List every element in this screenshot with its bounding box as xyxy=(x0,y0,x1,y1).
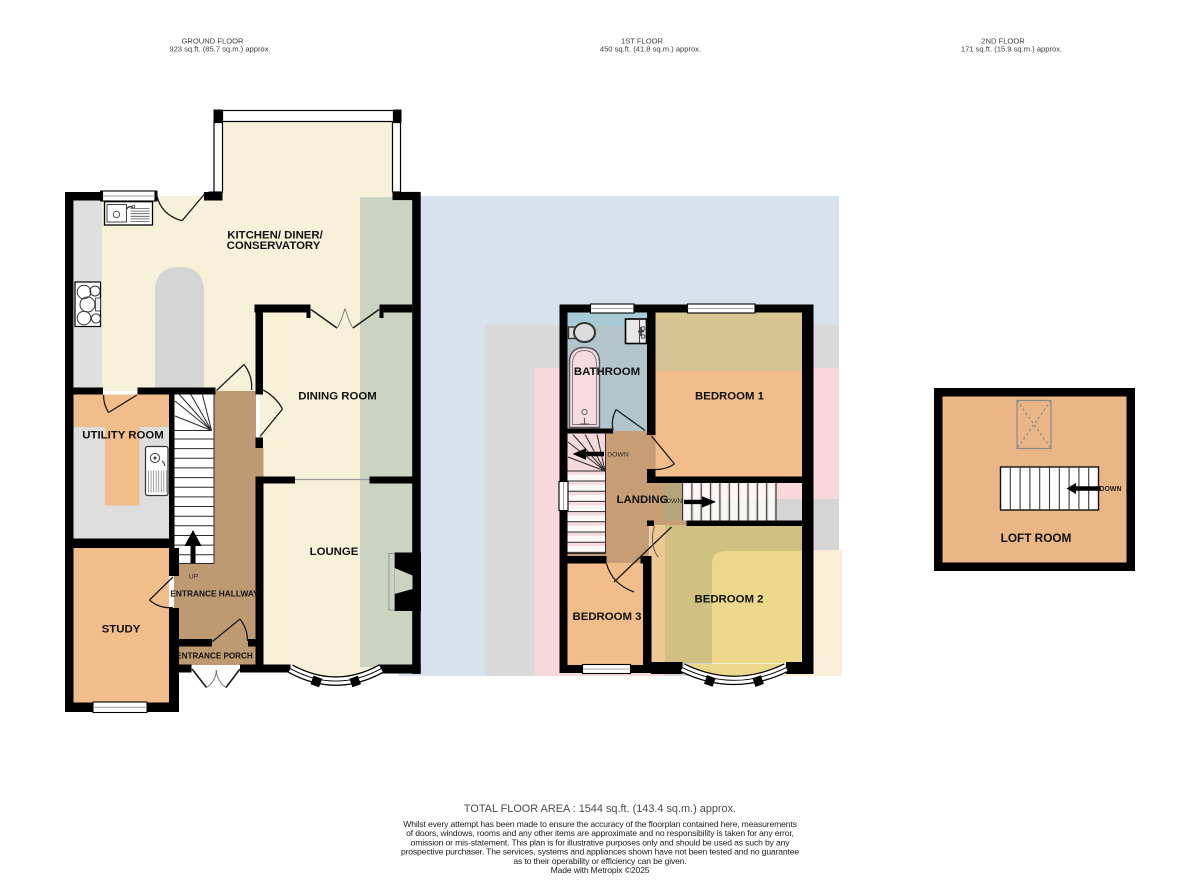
svg-text:Made with Metropix ©2025: Made with Metropix ©2025 xyxy=(551,865,650,875)
svg-text:BATHROOM: BATHROOM xyxy=(574,366,640,378)
svg-text:UP: UP xyxy=(189,574,199,581)
svg-text:CONSERVATORY: CONSERVATORY xyxy=(227,240,321,252)
svg-text:DINING ROOM: DINING ROOM xyxy=(298,391,376,403)
svg-text:171 sq.ft. (15.9 sq.m.) approx: 171 sq.ft. (15.9 sq.m.) approx. xyxy=(961,45,1062,54)
svg-text:BEDROOM 3: BEDROOM 3 xyxy=(573,611,642,623)
svg-text:ENTRANCE PORCH: ENTRANCE PORCH xyxy=(176,652,253,661)
svg-text:LOUNGE: LOUNGE xyxy=(310,546,359,558)
svg-text:DOWN: DOWN xyxy=(607,452,629,459)
svg-text:BEDROOM 2: BEDROOM 2 xyxy=(695,594,764,606)
svg-text:LOFT ROOM: LOFT ROOM xyxy=(1001,531,1072,545)
svg-text:DOWN: DOWN xyxy=(1099,486,1121,493)
svg-text:LANDING: LANDING xyxy=(617,494,669,506)
svg-text:450 sq.ft. (41.8 sq.m.) approx: 450 sq.ft. (41.8 sq.m.) approx. xyxy=(600,45,701,54)
svg-text:923 sq.ft. (85.7 sq.m.) approx: 923 sq.ft. (85.7 sq.m.) approx. xyxy=(169,45,270,54)
svg-text:UTILITY ROOM: UTILITY ROOM xyxy=(82,430,163,442)
svg-text:BEDROOM 1: BEDROOM 1 xyxy=(695,391,765,403)
svg-text:TOTAL FLOOR AREA : 1544 sq.ft.: TOTAL FLOOR AREA : 1544 sq.ft. (143.4 sq… xyxy=(464,803,736,815)
svg-text:STUDY: STUDY xyxy=(102,624,141,636)
svg-text:ENTRANCE HALLWAY: ENTRANCE HALLWAY xyxy=(170,589,259,599)
